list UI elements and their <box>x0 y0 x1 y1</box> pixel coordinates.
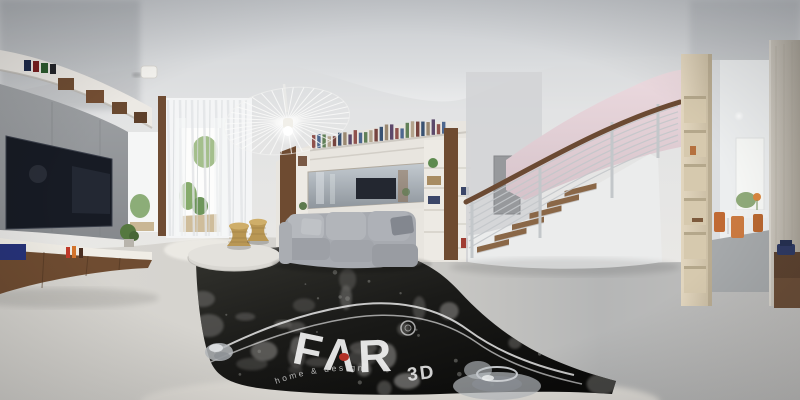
panorama-vignette <box>0 0 800 400</box>
panorama-render: FΛR 3D home & design <box>0 0 800 400</box>
panorama-viewport: FΛR 3D home & design <box>0 0 800 400</box>
